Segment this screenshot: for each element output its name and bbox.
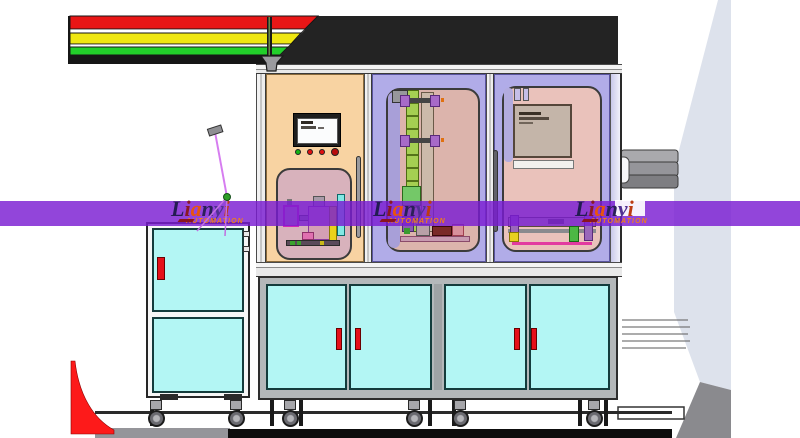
signal-bar-yellow xyxy=(70,33,301,44)
mid-clamp-mid-tip xyxy=(441,138,444,142)
right-mech-yellow-part xyxy=(509,232,519,242)
watermark-logo-1: Lianyi AUTOMATION xyxy=(171,200,261,228)
mid-mech-green-bit xyxy=(404,228,410,234)
signal-bar-red xyxy=(70,16,318,29)
machine-render-stage: Lianyi AUTOMATION Lianyi AUTOMATION Lian… xyxy=(0,0,800,438)
signal-bar-base xyxy=(70,55,280,64)
watermark-logo-3: Lianyi AUTOMATION xyxy=(575,200,665,228)
mid-clamp-top-tip xyxy=(441,98,444,102)
signal-bar-green xyxy=(70,47,288,55)
signal-bar-pole-highlight xyxy=(269,17,271,57)
machine-hood xyxy=(272,16,618,64)
right-mech-green-part xyxy=(569,226,579,242)
watermark-logo-2: Lianyi AUTOMATION xyxy=(373,200,463,228)
